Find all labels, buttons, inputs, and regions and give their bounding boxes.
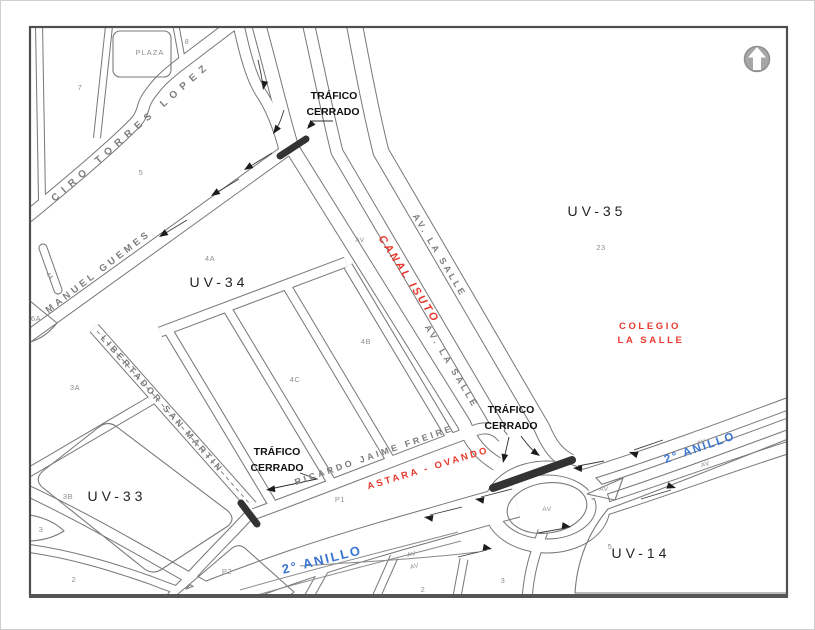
block-number: 3A [70, 383, 80, 392]
zone-label-uv-14: UV-14 [612, 545, 671, 561]
zone-label-uv-35: UV-35 [568, 203, 627, 219]
zone-label-uv-33: UV-33 [88, 488, 147, 504]
block-number: 3B [63, 492, 73, 501]
zone-label-uv-34: UV-34 [190, 274, 249, 290]
north-arrow-icon [745, 47, 770, 72]
block-number: 4C [290, 375, 301, 384]
colegio-la-salle-label: LA SALLE [618, 335, 685, 346]
block-number: 5 [139, 168, 144, 177]
block-number: 6A [31, 314, 41, 323]
block-number: P2 [222, 567, 232, 576]
closure-label-line: CERRADO [306, 106, 359, 118]
closure-label-line: TRÁFICO [311, 89, 358, 102]
closure-label-line: CERRADO [484, 420, 537, 432]
block-number: 23 [596, 243, 605, 252]
av-label: AV [599, 486, 608, 493]
block-number: 7 [78, 83, 83, 92]
plaza-label: PLAZA [136, 48, 165, 57]
block-number: 2 [72, 575, 77, 584]
av-label: AV [542, 506, 551, 513]
av-label: AV [355, 237, 364, 244]
block-number: 8 [185, 37, 190, 46]
block-number: 4A [205, 254, 215, 263]
map-canvas: CIRO TORRES LOPEZ MANUEL GUEMES LIBERTAD… [0, 0, 815, 630]
closure-label-line: TRÁFICO [488, 403, 535, 416]
block-number: 3 [501, 576, 506, 585]
block-number: 2 [421, 585, 426, 594]
block-number: 4B [361, 337, 371, 346]
closure-label-line: TRÁFICO [254, 445, 301, 458]
closure-label-line: CERRADO [250, 462, 303, 474]
map-page: CIRO TORRES LOPEZ MANUEL GUEMES LIBERTAD… [0, 0, 815, 630]
colegio-la-salle-label: COLEGIO [619, 321, 681, 332]
block-number: P1 [335, 495, 345, 504]
block-number: 5 [608, 542, 613, 551]
block-number: 3 [39, 525, 44, 534]
